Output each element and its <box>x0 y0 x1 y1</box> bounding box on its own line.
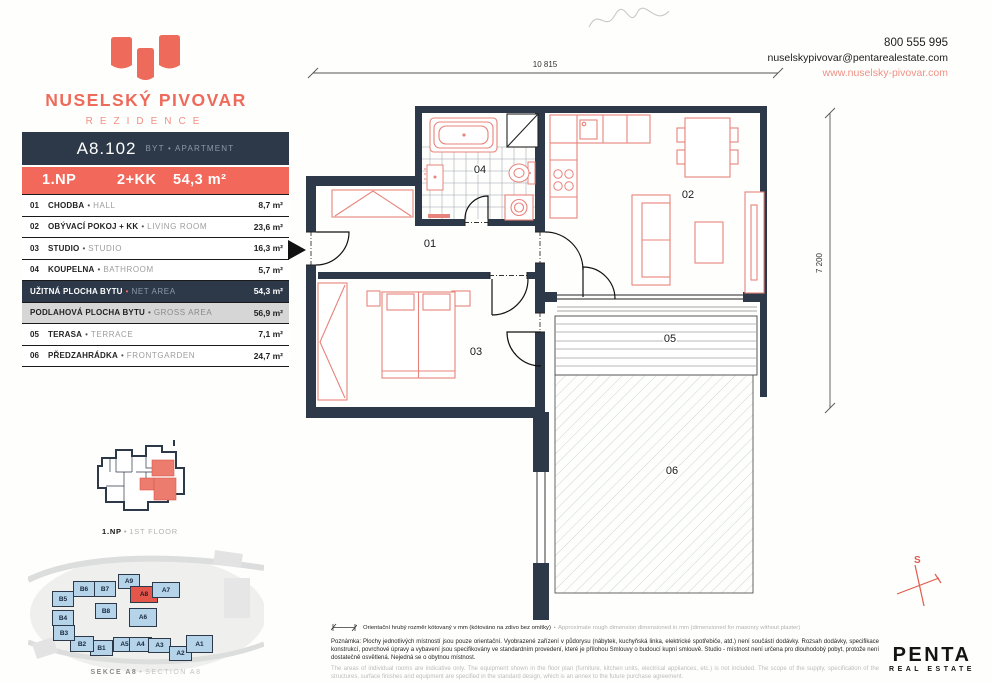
bullet: • <box>98 265 101 274</box>
penta-tagline: REAL ESTATE <box>884 666 980 673</box>
key-plan-floor-cz: 1.NP <box>102 527 122 536</box>
building-label: B7 <box>101 586 109 593</box>
entrance-arrow-icon <box>288 240 306 260</box>
building-B6: B6 <box>73 581 95 597</box>
bullet: • <box>121 351 124 360</box>
total-name-cz: PODLAHOVÁ PLOCHA BYTU <box>30 308 145 317</box>
bullet: • <box>82 244 85 253</box>
rooms-table: 01 CHODBA • HALL 8,7 m² 02 OBÝVACÍ POKOJ… <box>22 194 289 367</box>
building-label: A5 <box>120 641 128 648</box>
bullet: • <box>85 330 88 339</box>
room-name-cz: PŘEDZAHRÁDKA <box>48 351 118 360</box>
unit-summary-bar: 1.NP 2+KK 54,3 m² <box>22 167 289 194</box>
building-B3: B3 <box>53 625 75 641</box>
bathroom-sink <box>424 165 443 190</box>
room-number: 03 <box>22 244 48 253</box>
room-name-en: TERRACE <box>91 330 133 339</box>
coffee-table <box>695 222 723 263</box>
building-label: A9 <box>125 578 133 585</box>
building-label: A4 <box>136 641 144 648</box>
dimension-width-label: 10 815 <box>533 60 558 69</box>
building-label: A6 <box>139 614 147 621</box>
compass-label: S <box>914 555 921 566</box>
site-map-caption-cz: SEKCE A8 <box>91 669 138 676</box>
bullet: • <box>168 144 172 153</box>
building-floor-key-plan <box>88 438 193 526</box>
unit-type: BYT • APARTMENT <box>146 144 235 153</box>
unit-floor: 1.NP <box>42 172 76 188</box>
room-name-cz: CHODBA <box>48 201 84 210</box>
disclaimer-cz: Poznámka: Plochy jednotlivých místností … <box>331 638 879 663</box>
hall-wardrobe <box>332 190 413 217</box>
room-name-en: BATHROOM <box>103 265 153 274</box>
bullet: • <box>87 201 90 210</box>
brand-name: NUSELSKÝ PIVOVAR <box>30 90 262 111</box>
bullet: • <box>124 527 127 536</box>
bullet: • <box>141 222 144 231</box>
room-number: 01 <box>22 201 48 210</box>
building-A3: A3 <box>148 638 171 653</box>
room-label-03: 03 <box>470 346 482 358</box>
dimension-note-cz: Orientační hrubý rozměr kótovaný v mm (k… <box>363 625 551 631</box>
dining-table <box>677 118 738 177</box>
floorplan-sheet: NUSELSKÝ PIVOVAR REZIDENCE A8.102 BYT • … <box>0 0 992 682</box>
room-label-02: 02 <box>682 189 694 201</box>
unit-area: 54,3 m² <box>173 172 226 188</box>
key-plan-caption: 1.NP•1ST FLOOR <box>70 527 210 536</box>
terrace-glazing <box>557 295 743 299</box>
floor-plan: 10 815 7 200 <box>280 50 840 650</box>
building-label: B6 <box>80 586 88 593</box>
building-B4: B4 <box>52 610 74 626</box>
bullet: • <box>148 308 151 317</box>
brand-subtitle: REZIDENCE <box>30 116 262 127</box>
dimension-height-label: 7 200 <box>815 252 824 273</box>
total-name-cz: UŽITNÁ PLOCHA BYTU <box>30 287 123 296</box>
net-area-row: UŽITNÁ PLOCHA BYTU • NET AREA 54,3 m² <box>22 281 289 303</box>
room-label-04: 04 <box>474 164 486 176</box>
building-label: B2 <box>78 641 86 648</box>
unit-layout: 2+KK <box>117 172 156 188</box>
site-map-caption: SEKCE A8•SECTION A8 <box>28 669 264 676</box>
room-name-cz: OBÝVACÍ POKOJ + KK <box>48 222 138 231</box>
table-row: 01 CHODBA • HALL 8,7 m² <box>22 195 289 217</box>
bullet: • <box>139 669 143 676</box>
bullet: • <box>126 287 129 296</box>
building-label: B4 <box>59 615 67 622</box>
table-row: 04 KOUPELNA • BATHROOM 5,7 m² <box>22 260 289 282</box>
dimension-legend: Orientační hrubý rozměr kótovaný v mm (k… <box>331 623 879 632</box>
dimension-height <box>825 108 835 413</box>
terrace <box>555 307 757 375</box>
toilet <box>509 162 535 184</box>
sideboard <box>745 192 764 293</box>
garden-window <box>533 472 549 563</box>
unit-type-en: APARTMENT <box>175 144 234 153</box>
room-name-en: LIVING ROOM <box>147 222 207 231</box>
dimension-line-icon <box>331 623 357 632</box>
building-B5: B5 <box>52 591 74 607</box>
sofa <box>632 195 670 285</box>
compass-north-icon: S <box>888 548 948 618</box>
room-name-en: FRONTGARDEN <box>127 351 195 360</box>
room-name-cz: TERASA <box>48 330 82 339</box>
room-label-01: 01 <box>424 238 436 250</box>
room-number: 02 <box>22 222 48 231</box>
total-name-en: NET AREA <box>131 287 175 296</box>
notes-block: Orientační hrubý rozměr kótovaný v mm (k… <box>331 623 879 681</box>
room-label-05: 05 <box>664 333 676 345</box>
brand-logo: NUSELSKÝ PIVOVAR REZIDENCE <box>30 34 262 127</box>
front-garden <box>555 375 753 593</box>
building-label: A2 <box>176 650 184 657</box>
building-label: B5 <box>59 596 67 603</box>
room-number: 06 <box>22 351 48 360</box>
penta-logo: PENTA REAL ESTATE <box>884 645 980 673</box>
penta-name: PENTA <box>884 645 980 665</box>
building-label: A7 <box>162 587 170 594</box>
building-B7: B7 <box>94 581 116 597</box>
building-label: A8 <box>140 591 148 598</box>
phone-number: 800 555 995 <box>768 36 949 51</box>
washing-machine <box>505 195 533 220</box>
brewery-tanks-icon <box>104 34 188 86</box>
table-row: 02 OBÝVACÍ POKOJ + KK • LIVING ROOM 23,6… <box>22 217 289 239</box>
room-number: 05 <box>22 330 48 339</box>
room-label-06: 06 <box>666 465 678 477</box>
building-A1: A1 <box>186 635 213 653</box>
building-label: B3 <box>60 630 68 637</box>
building-label: B1 <box>97 645 105 652</box>
room-number: 04 <box>22 265 48 274</box>
building-label: B8 <box>102 608 110 615</box>
building-B8: B8 <box>95 603 117 619</box>
utility-shaft <box>507 114 538 147</box>
building-label: A3 <box>155 642 163 649</box>
scan-scribble <box>585 5 675 35</box>
room-name-cz: STUDIO <box>48 244 79 253</box>
gross-area-row: PODLAHOVÁ PLOCHA BYTU • GROSS AREA 56,9 … <box>22 303 289 325</box>
unit-code: A8.102 <box>77 139 137 159</box>
bathtub <box>430 118 497 152</box>
room-name-en: HALL <box>93 201 115 210</box>
building-label: A1 <box>195 641 203 648</box>
site-map-caption-en: SECTION A8 <box>145 669 201 676</box>
bullet: • <box>554 625 556 631</box>
room-name-cz: KOUPELNA <box>48 265 95 274</box>
table-row: 03 STUDIO • STUDIO 16,3 m² <box>22 238 289 260</box>
total-name-en: GROSS AREA <box>154 308 212 317</box>
building-A7: A7 <box>152 582 180 598</box>
disclaimer-en: The areas of individual rooms are indica… <box>331 665 879 681</box>
dimension-note-en: Approximate rough dimension dimensioned … <box>558 625 800 631</box>
key-plan-floor-en: 1ST FLOOR <box>129 527 178 536</box>
dimension-width <box>308 68 783 78</box>
building-A6: A6 <box>129 608 157 627</box>
studio-wardrobe <box>318 283 347 400</box>
table-row: 06 PŘEDZAHRÁDKA • FRONTGARDEN 24,7 m² <box>22 346 289 368</box>
unit-type-cz: BYT <box>146 144 165 153</box>
unit-header: A8.102 BYT • APARTMENT <box>22 132 289 165</box>
shower-drain <box>428 214 450 218</box>
room-name-en: STUDIO <box>88 244 122 253</box>
table-row: 05 TERASA • TERRACE 7,1 m² <box>22 324 289 346</box>
double-bed <box>367 291 470 378</box>
site-map: A9 A8 A7 A6 A5 A4 A3 A2 A1 B1 B2 B3 B4 B… <box>28 542 264 682</box>
